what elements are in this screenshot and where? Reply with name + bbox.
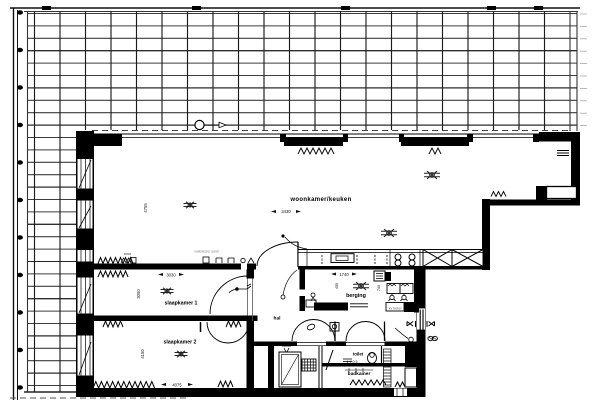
svg-text:slaapkamer 2: slaapkamer 2 xyxy=(164,340,197,346)
svg-text:woonkamer/keuken: woonkamer/keuken xyxy=(289,197,351,203)
svg-text:vaatwasser aansl.: vaatwasser aansl. xyxy=(194,250,220,254)
svg-text:1 7 0 5: 1 7 0 5 xyxy=(347,360,358,364)
svg-text:455: 455 xyxy=(335,283,339,289)
svg-text:slaapkamer 1: slaapkamer 1 xyxy=(165,301,198,307)
svg-text:hal: hal xyxy=(274,316,281,322)
svg-text:3030: 3030 xyxy=(166,273,176,278)
svg-text:berging: berging xyxy=(346,293,366,299)
svg-text:kv ketel: kv ketel xyxy=(389,307,402,311)
svg-text:4150: 4150 xyxy=(140,349,145,359)
svg-text:3430: 3430 xyxy=(281,209,291,214)
svg-text:4075: 4075 xyxy=(172,383,182,388)
svg-text:3050: 3050 xyxy=(136,289,141,299)
svg-text:1740: 1740 xyxy=(339,272,349,277)
svg-text:4755: 4755 xyxy=(143,203,148,213)
svg-text:badkamer: badkamer xyxy=(348,371,371,377)
svg-text:toilet: toilet xyxy=(353,352,364,357)
svg-text:740: 740 xyxy=(377,285,381,291)
